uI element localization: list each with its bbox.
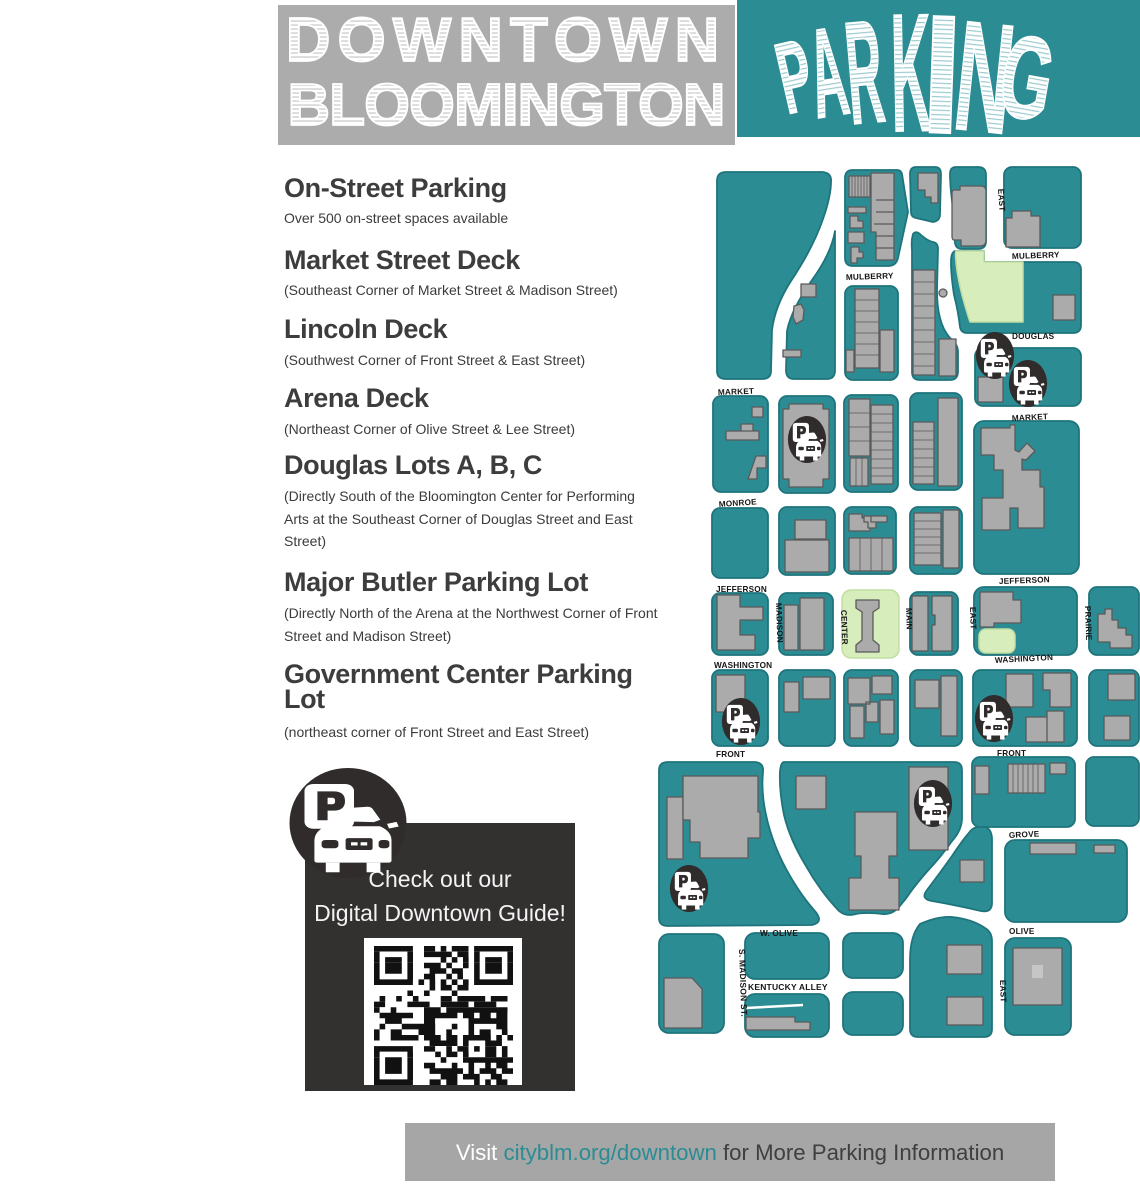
svg-text:GROVE: GROVE	[1009, 829, 1040, 840]
svg-text:MARKET: MARKET	[1012, 412, 1049, 423]
svg-text:MADISON: MADISON	[774, 603, 784, 643]
svg-text:WASHINGTON: WASHINGTON	[714, 661, 772, 670]
svg-text:MULBERRY: MULBERRY	[846, 271, 894, 282]
svg-text:EAST: EAST	[998, 980, 1008, 1003]
svg-text:KENTUCKY ALLEY: KENTUCKY ALLEY	[748, 982, 828, 992]
svg-text:JEFFERSON: JEFFERSON	[999, 575, 1050, 586]
svg-text:OLIVE: OLIVE	[1009, 927, 1035, 936]
svg-text:EAST: EAST	[996, 189, 1007, 212]
svg-text:CENTER: CENTER	[839, 610, 849, 645]
svg-text:MULBERRY: MULBERRY	[1012, 250, 1060, 261]
svg-text:MAIN: MAIN	[904, 608, 914, 630]
svg-text:WASHINGTON: WASHINGTON	[995, 653, 1054, 665]
svg-text:S. MADISON ST.: S. MADISON ST.	[737, 949, 749, 1017]
svg-text:W. OLIVE: W. OLIVE	[760, 929, 798, 938]
svg-text:EAST: EAST	[968, 607, 978, 630]
svg-text:FRONT: FRONT	[997, 749, 1026, 758]
svg-text:MARKET: MARKET	[718, 387, 755, 397]
svg-text:PRAIRIE: PRAIRIE	[1083, 606, 1093, 641]
svg-text:DOUGLAS: DOUGLAS	[1012, 332, 1055, 341]
svg-text:FRONT: FRONT	[716, 750, 745, 759]
svg-text:JEFFERSON: JEFFERSON	[716, 585, 767, 594]
